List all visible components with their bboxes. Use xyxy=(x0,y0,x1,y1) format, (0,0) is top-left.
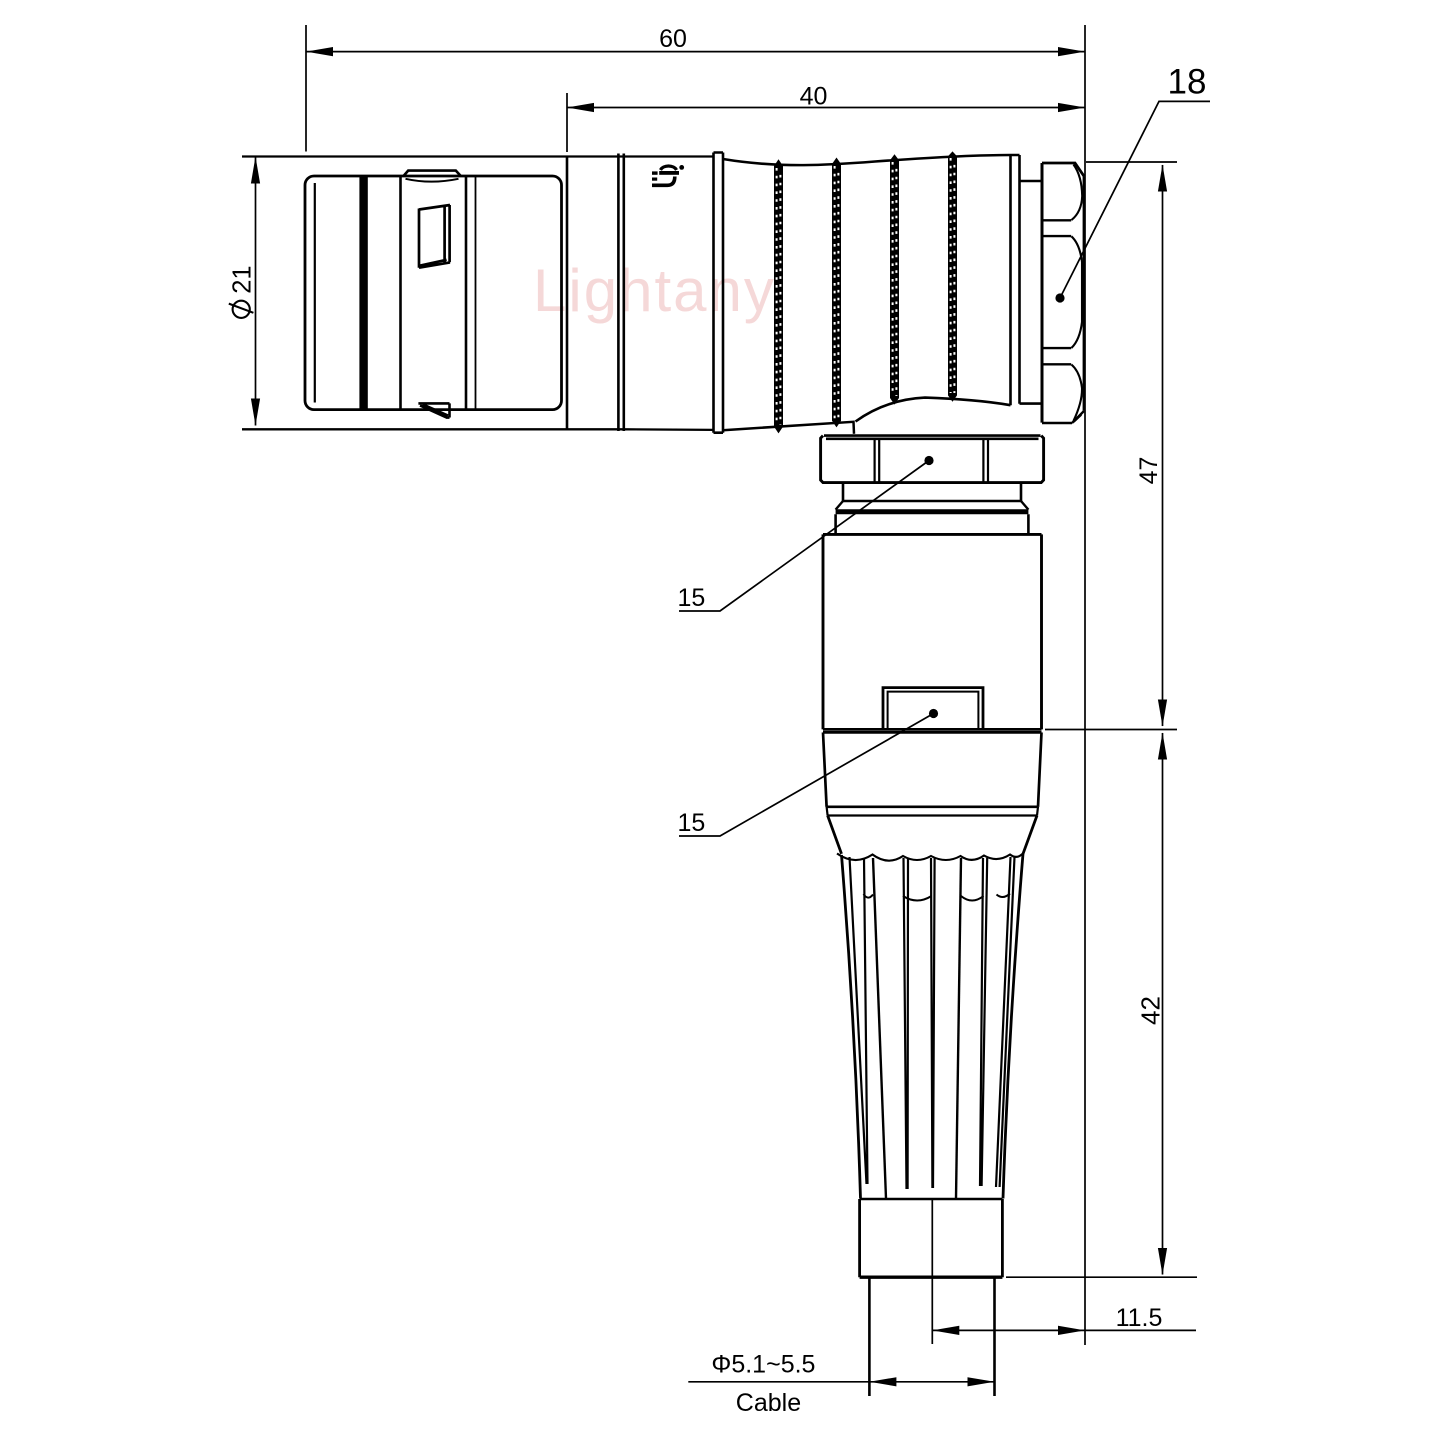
svg-text:Lightany: Lightany xyxy=(533,257,776,324)
svg-text:40: 40 xyxy=(800,83,828,111)
svg-text:Φ5.1~5.5: Φ5.1~5.5 xyxy=(711,1351,815,1379)
svg-text:42: 42 xyxy=(1136,996,1166,1025)
svg-text:47: 47 xyxy=(1135,457,1163,485)
svg-text:18: 18 xyxy=(1168,63,1207,102)
svg-text:21: 21 xyxy=(229,265,257,293)
svg-text:60: 60 xyxy=(659,25,687,53)
svg-text:Cable: Cable xyxy=(736,1389,801,1417)
svg-text:15: 15 xyxy=(677,584,705,612)
svg-text:15: 15 xyxy=(677,809,705,837)
svg-text:11.5: 11.5 xyxy=(1116,1304,1163,1332)
